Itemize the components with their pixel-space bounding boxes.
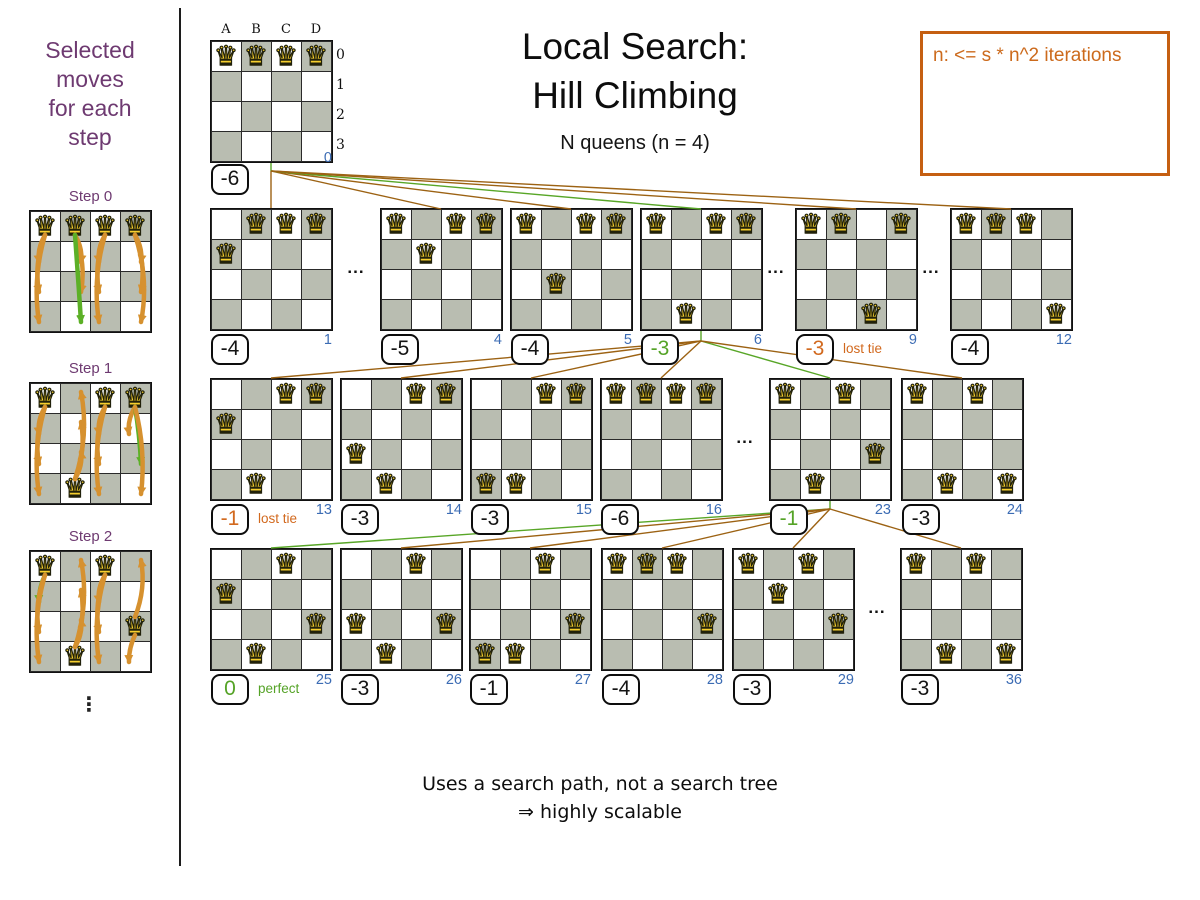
queen-icon: ♛ <box>561 379 591 409</box>
queen-icon: ♛ <box>902 379 932 409</box>
queen-icon: ♛ <box>441 209 471 239</box>
queen-icon: ♛ <box>602 549 632 579</box>
queen-icon: ♛ <box>241 639 271 669</box>
slide-canvas: Selected moves for each step Local Searc… <box>0 0 1200 900</box>
queen-icon: ♛ <box>901 549 931 579</box>
queen-icon: ♛ <box>271 209 301 239</box>
queen-icon: ♛ <box>241 469 271 499</box>
queen-icon: ♛ <box>471 469 501 499</box>
queen-icon: ♛ <box>1041 299 1071 329</box>
queen-icon: ♛ <box>961 549 991 579</box>
queen-icon: ♛ <box>701 209 731 239</box>
queen-icon: ♛ <box>381 209 411 239</box>
queen-icon: ♛ <box>371 469 401 499</box>
queen-icon: ♛ <box>431 609 461 639</box>
queen-icon: ♛ <box>886 209 916 239</box>
queen-icon: ♛ <box>271 41 301 71</box>
boards-layer: ♛♛♛♛♛♛♛♛♛♛♛♛♛♛♛♛♛♛♛♛♛♛♛♛♛♛♛♛♛♛♛♛♛♛♛♛♛♛♛♛… <box>0 0 1200 900</box>
queen-icon: ♛ <box>1011 209 1041 239</box>
board-25: ♛♛♛♛ <box>210 548 333 671</box>
queen-icon: ♛ <box>770 379 800 409</box>
queen-icon: ♛ <box>411 239 441 269</box>
board-12: ♛♛♛♛ <box>950 208 1073 331</box>
step-label-0: Step 0 <box>29 188 152 205</box>
queen-icon: ♛ <box>962 379 992 409</box>
queen-icon: ♛ <box>531 379 561 409</box>
queen-icon: ♛ <box>241 41 271 71</box>
queen-icon: ♛ <box>401 379 431 409</box>
queen-icon: ♛ <box>301 209 331 239</box>
queen-icon: ♛ <box>731 209 761 239</box>
queen-icon: ♛ <box>631 379 661 409</box>
queen-icon: ♛ <box>932 469 962 499</box>
root-board: ♛♛♛♛ <box>210 40 333 163</box>
board-15: ♛♛♛♛ <box>470 378 593 501</box>
queen-icon: ♛ <box>992 469 1022 499</box>
board-4: ♛♛♛♛ <box>380 208 503 331</box>
board-9: ♛♛♛♛ <box>795 208 918 331</box>
queen-icon: ♛ <box>981 209 1011 239</box>
board-27: ♛♛♛♛ <box>469 548 592 671</box>
queen-icon: ♛ <box>991 639 1021 669</box>
queen-icon: ♛ <box>470 639 500 669</box>
queen-icon: ♛ <box>601 379 631 409</box>
queen-icon: ♛ <box>830 379 860 409</box>
queen-icon: ♛ <box>823 609 853 639</box>
queen-icon: ♛ <box>860 439 890 469</box>
queen-icon: ♛ <box>662 549 692 579</box>
queen-icon: ♛ <box>796 209 826 239</box>
board-1: ♛♛♛♛ <box>210 208 333 331</box>
queen-icon: ♛ <box>601 209 631 239</box>
board-6: ♛♛♛♛ <box>640 208 763 331</box>
queen-icon: ♛ <box>341 609 371 639</box>
queen-icon: ♛ <box>241 209 271 239</box>
queen-icon: ♛ <box>571 209 601 239</box>
queen-icon: ♛ <box>560 609 590 639</box>
board-13: ♛♛♛♛ <box>210 378 333 501</box>
queen-icon: ♛ <box>211 41 241 71</box>
board-29: ♛♛♛♛ <box>732 548 855 671</box>
queen-icon: ♛ <box>301 609 331 639</box>
queen-icon: ♛ <box>301 41 331 71</box>
queen-icon: ♛ <box>632 549 662 579</box>
board-16: ♛♛♛♛ <box>600 378 723 501</box>
move-arrows <box>30 211 150 331</box>
queen-icon: ♛ <box>763 579 793 609</box>
queen-icon: ♛ <box>431 379 461 409</box>
queen-icon: ♛ <box>271 379 301 409</box>
queen-icon: ♛ <box>826 209 856 239</box>
queen-icon: ♛ <box>341 439 371 469</box>
board-14: ♛♛♛♛ <box>340 378 463 501</box>
queen-icon: ♛ <box>511 209 541 239</box>
queen-icon: ♛ <box>211 579 241 609</box>
step-label-1: Step 1 <box>29 360 152 377</box>
move-arrows <box>30 551 150 671</box>
step-board-0: ♛♛♛♛ <box>29 210 152 333</box>
queen-icon: ♛ <box>211 239 241 269</box>
step-board-1: ♛♛♛♛ <box>29 382 152 505</box>
queen-icon: ♛ <box>641 209 671 239</box>
queen-icon: ♛ <box>401 549 431 579</box>
queen-icon: ♛ <box>800 469 830 499</box>
board-36: ♛♛♛♛ <box>900 548 1023 671</box>
queen-icon: ♛ <box>671 299 701 329</box>
board-28: ♛♛♛♛ <box>601 548 724 671</box>
board-26: ♛♛♛♛ <box>340 548 463 671</box>
queen-icon: ♛ <box>471 209 501 239</box>
step-label-2: Step 2 <box>29 528 152 545</box>
queen-icon: ♛ <box>661 379 691 409</box>
queen-icon: ♛ <box>271 549 301 579</box>
step-board-2: ♛♛♛♛ <box>29 550 152 673</box>
queen-icon: ♛ <box>301 379 331 409</box>
queen-icon: ♛ <box>211 409 241 439</box>
board-5: ♛♛♛♛ <box>510 208 633 331</box>
queen-icon: ♛ <box>500 639 530 669</box>
queen-icon: ♛ <box>733 549 763 579</box>
queen-icon: ♛ <box>692 609 722 639</box>
queen-icon: ♛ <box>856 299 886 329</box>
queen-icon: ♛ <box>371 639 401 669</box>
queen-icon: ♛ <box>541 269 571 299</box>
queen-icon: ♛ <box>501 469 531 499</box>
board-24: ♛♛♛♛ <box>901 378 1024 501</box>
queen-icon: ♛ <box>951 209 981 239</box>
queen-icon: ♛ <box>793 549 823 579</box>
queen-icon: ♛ <box>931 639 961 669</box>
move-arrows <box>30 383 150 503</box>
queen-icon: ♛ <box>530 549 560 579</box>
board-23: ♛♛♛♛ <box>769 378 892 501</box>
queen-icon: ♛ <box>691 379 721 409</box>
